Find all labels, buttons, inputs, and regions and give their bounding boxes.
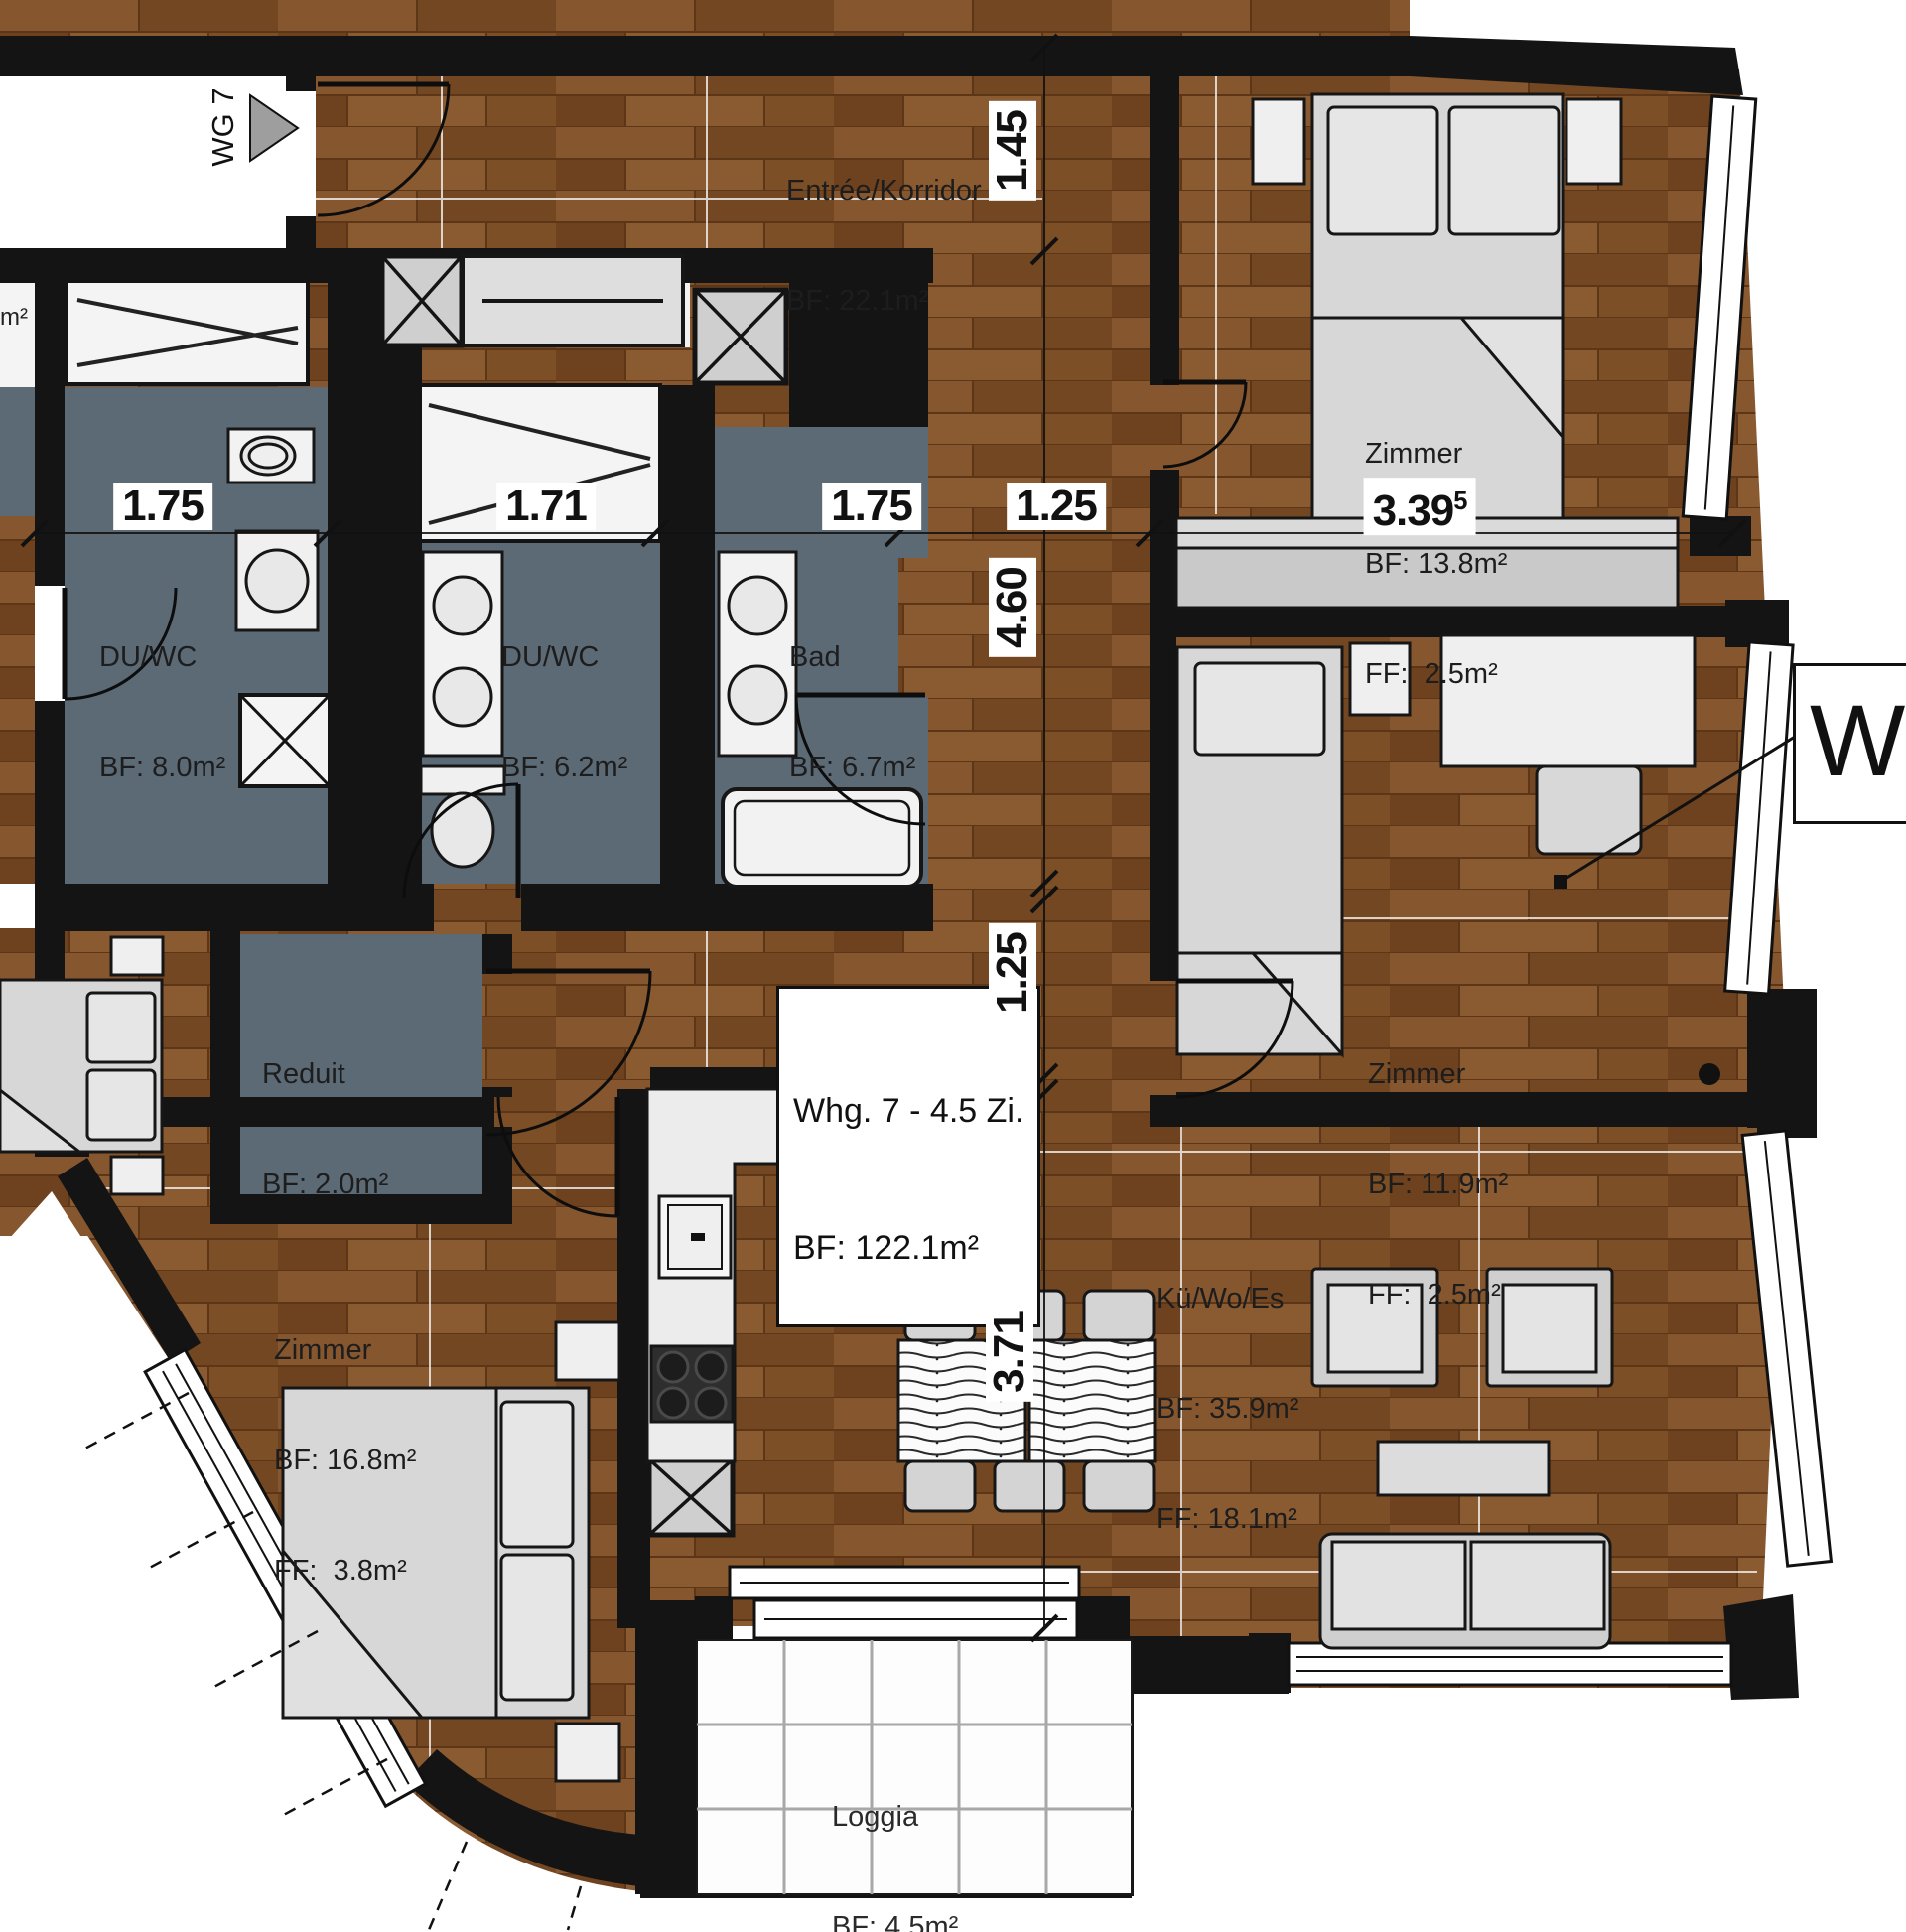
bed-east: [1177, 647, 1342, 1054]
nightstand-north-left: [1253, 99, 1304, 184]
bath2-fixtures: [421, 552, 504, 867]
dimension-label: 3.71: [986, 1303, 1033, 1402]
dimension-label: 1.25: [1007, 483, 1106, 530]
dimension-label: 4.60: [989, 558, 1036, 657]
unit-entrance-label: WG 7: [205, 87, 241, 166]
dimension-label: 1.75: [113, 483, 212, 530]
nightstand-south-1: [556, 1322, 619, 1380]
dimension-label: 1.25: [989, 923, 1036, 1023]
bath1-fixtures: [228, 429, 318, 630]
room-label-loggia: Loggia BF: 4.5m²: [832, 1725, 958, 1932]
room-label-zimmer-nord: Zimmer BF: 13.8m² FF: 2.5m²: [1365, 362, 1507, 730]
apartment-info-box: Whg. 7 - 4.5 Zi. BF: 122.1m²: [776, 986, 1040, 1327]
room-label-zimmer-ost: Zimmer BF: 11.9m² FF: 2.5m²: [1368, 983, 1508, 1350]
dimension-label: 3.395: [1364, 478, 1476, 535]
shaft-kitchen-bottom: [649, 1459, 733, 1535]
shaft-corridor-1: [382, 256, 462, 345]
room-label-reduit: Reduit BF: 2.0m²: [262, 983, 388, 1240]
shaft-corridor-2: [695, 290, 786, 383]
room-label-zimmer-sued: Zimmer BF: 16.8m² FF: 3.8m²: [274, 1259, 416, 1626]
column-dot: [1699, 1063, 1720, 1085]
dimension-label: 1.75: [822, 483, 921, 530]
neighbor-label-fragment: m²: [0, 304, 28, 332]
room-label-entree: Entrée/Korridor BF: 22.1m²: [786, 99, 982, 356]
coffee-table: [1378, 1442, 1549, 1495]
room-label-duwc1: DU/WC BF: 8.0m²: [99, 566, 225, 823]
dimension-label: 1.71: [496, 483, 596, 530]
dimension-label: 1.45: [989, 101, 1036, 201]
room-label-duwc2: DU/WC BF: 6.2m²: [501, 566, 627, 823]
nightstand-south-2: [556, 1724, 619, 1781]
floor-plan-canvas: WG 7 m² Entrée/Korridor BF: 22.1m² Zimme…: [0, 0, 1906, 1932]
loggia-sliding-door: [730, 1567, 1079, 1638]
room-label-bad: Bad BF: 6.7m²: [789, 566, 915, 823]
nightstand-north-right: [1566, 99, 1621, 184]
room-label-wohnen: Kü/Wo/Es BF: 35.9m² FF: 18.1m²: [1157, 1207, 1298, 1575]
unit-reference-label: WE: [1793, 663, 1906, 824]
shower-left-bath: [240, 695, 330, 786]
